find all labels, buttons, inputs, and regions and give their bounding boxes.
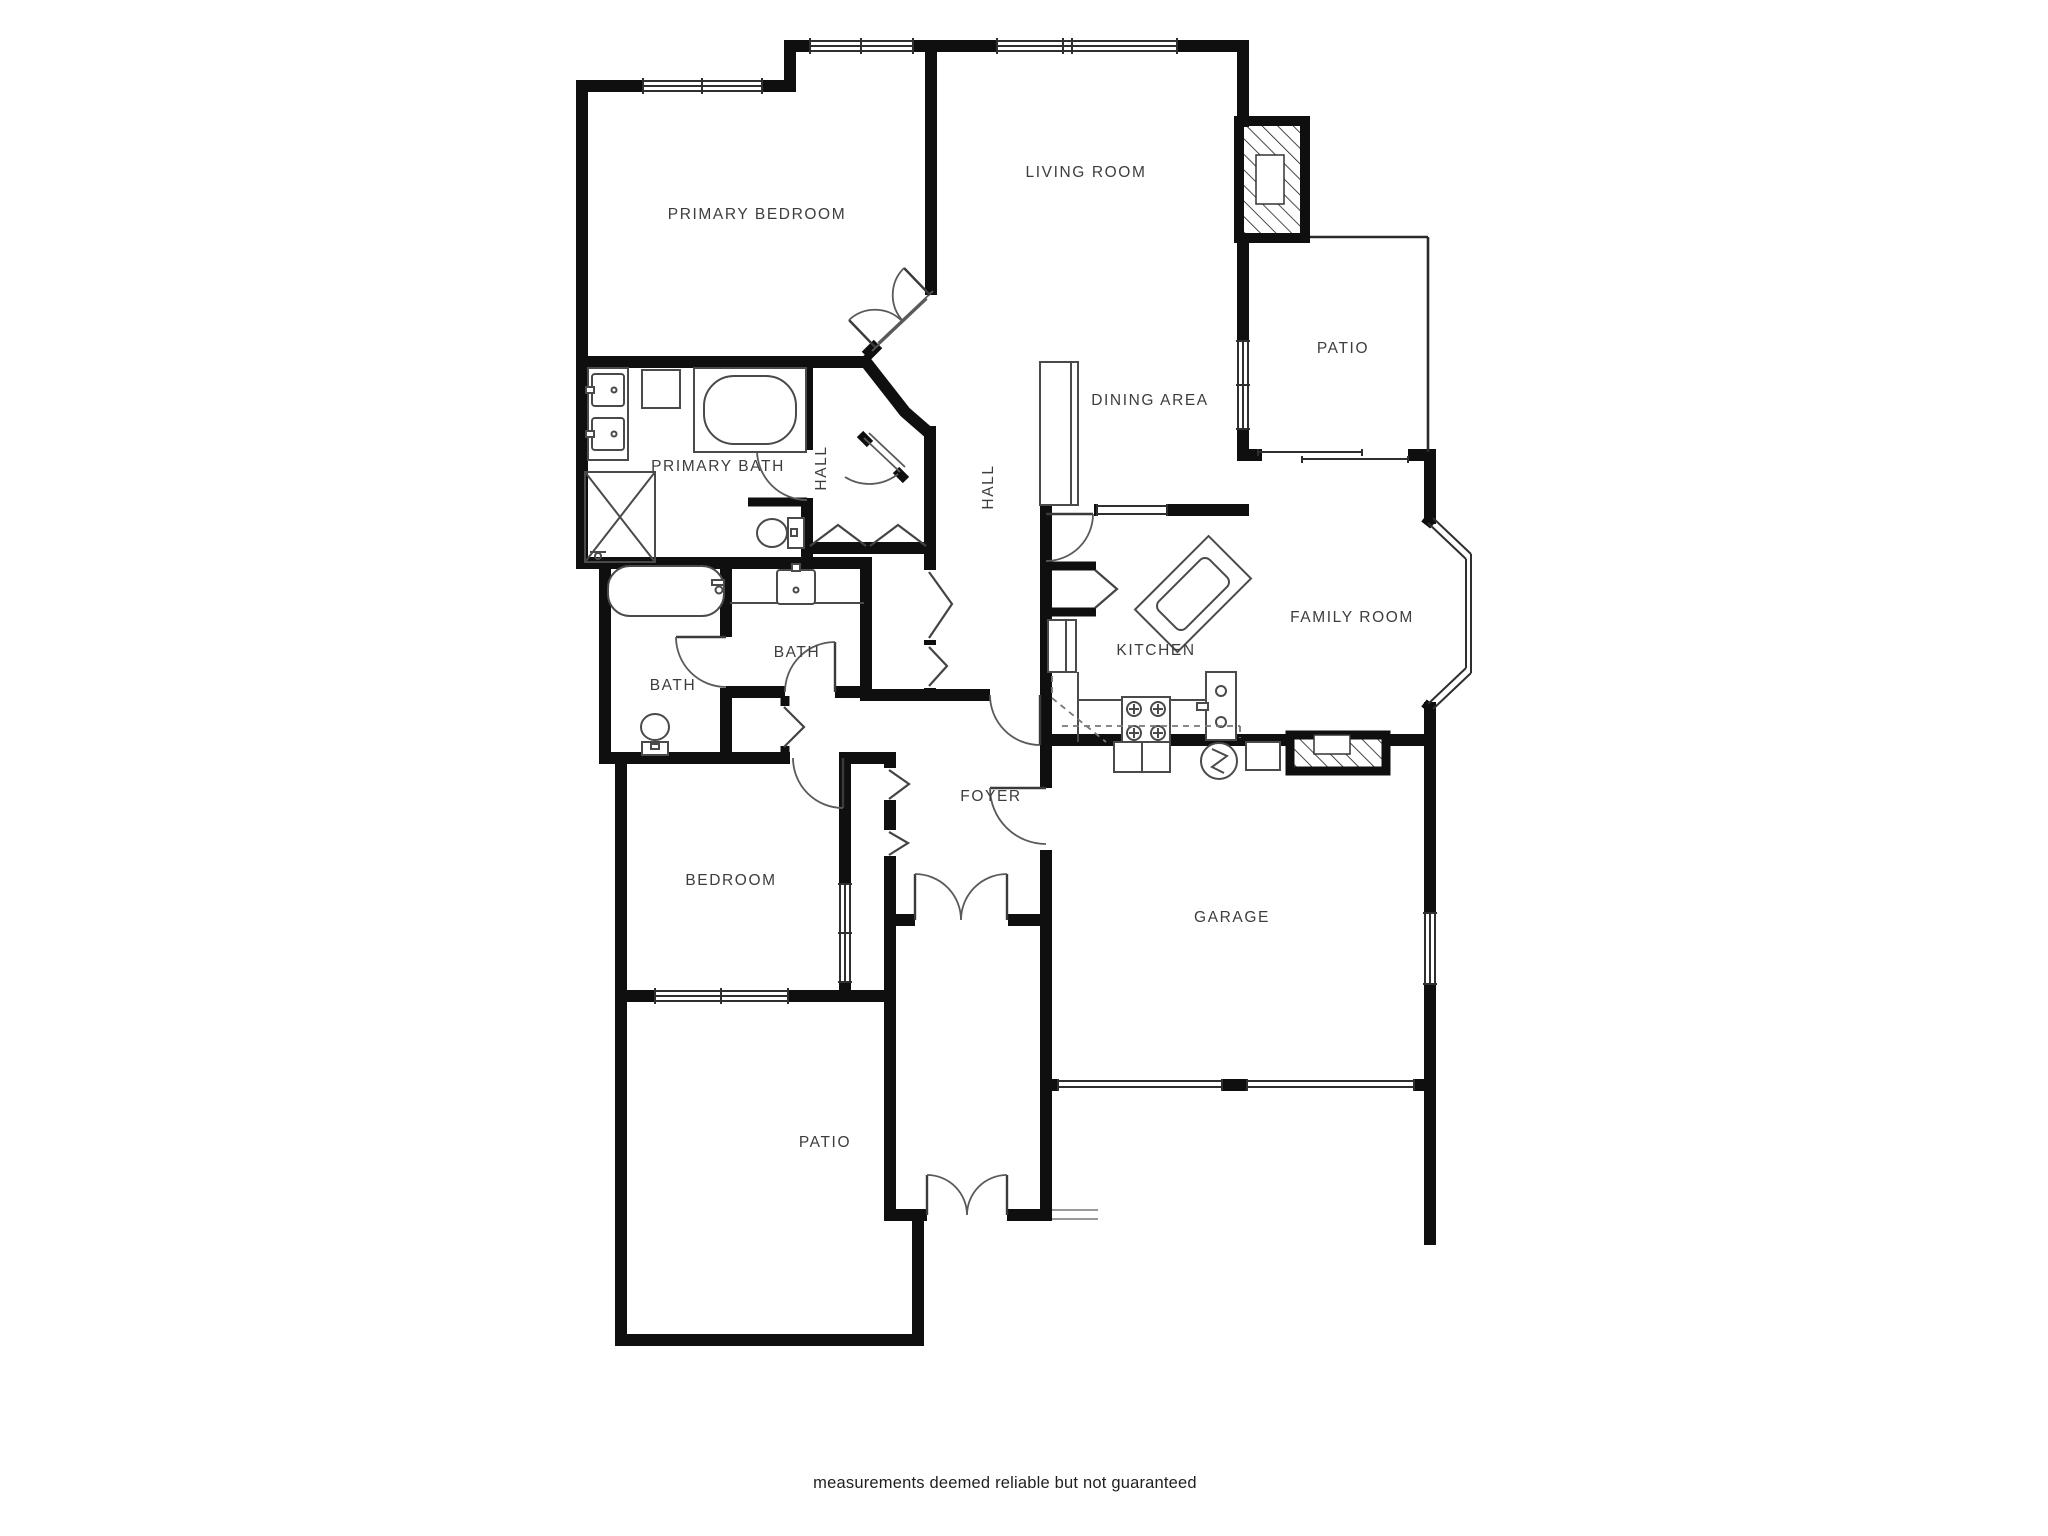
bathtub-icon [608,566,724,616]
label-kitchen: KITCHEN [1116,642,1195,659]
kitchen-fixtures [1040,362,1251,742]
water-heater-icon [1201,743,1237,779]
toilet-icon [757,518,804,548]
furnace-icon [1114,742,1170,772]
utility-cabinet-icon [1246,742,1280,770]
family-room-fireplace-icon [1290,735,1386,771]
kitchen-sink-icon [1197,672,1236,740]
label-bedroom: BEDROOM [685,872,776,889]
cabinet-icon [642,370,680,408]
kitchen-island-icon [1135,536,1251,652]
disclaimer-caption: measurements deemed reliable but not gua… [813,1474,1197,1492]
refrigerator-icon [1048,620,1076,672]
label-living-room: LIVING ROOM [1026,164,1147,181]
label-garage: GARAGE [1194,909,1270,926]
label-bath-right: BATH [774,644,821,661]
label-patio-lower: PATIO [799,1134,851,1151]
label-family-room: FAMILY ROOM [1290,609,1414,626]
garden-tub-icon [694,368,806,452]
range-icon [1122,697,1170,742]
label-dining-area: DINING AREA [1091,392,1209,409]
garage-fixtures [1114,742,1280,779]
sink-icon [777,564,815,604]
label-patio-upper: PATIO [1317,340,1369,357]
shower-icon [585,472,655,562]
hall-bath-fixtures [608,564,864,755]
floor-plan-drawing: PRIMARY BEDROOM LIVING ROOM PATIO DINING… [0,0,2048,1536]
label-foyer: FOYER [960,788,1021,805]
living-room-fireplace-icon [1239,121,1305,238]
toilet-icon [641,714,669,755]
label-hall-east: HALL [980,464,997,509]
label-hall-west: HALL [813,445,830,490]
label-bath-left: BATH [650,677,697,694]
label-primary-bath: PRIMARY BATH [651,458,785,475]
label-primary-bedroom: PRIMARY BEDROOM [668,206,846,223]
dining-counter-icon [1040,362,1078,505]
floor-plan-page: PRIMARY BEDROOM LIVING ROOM PATIO DINING… [0,0,2048,1536]
